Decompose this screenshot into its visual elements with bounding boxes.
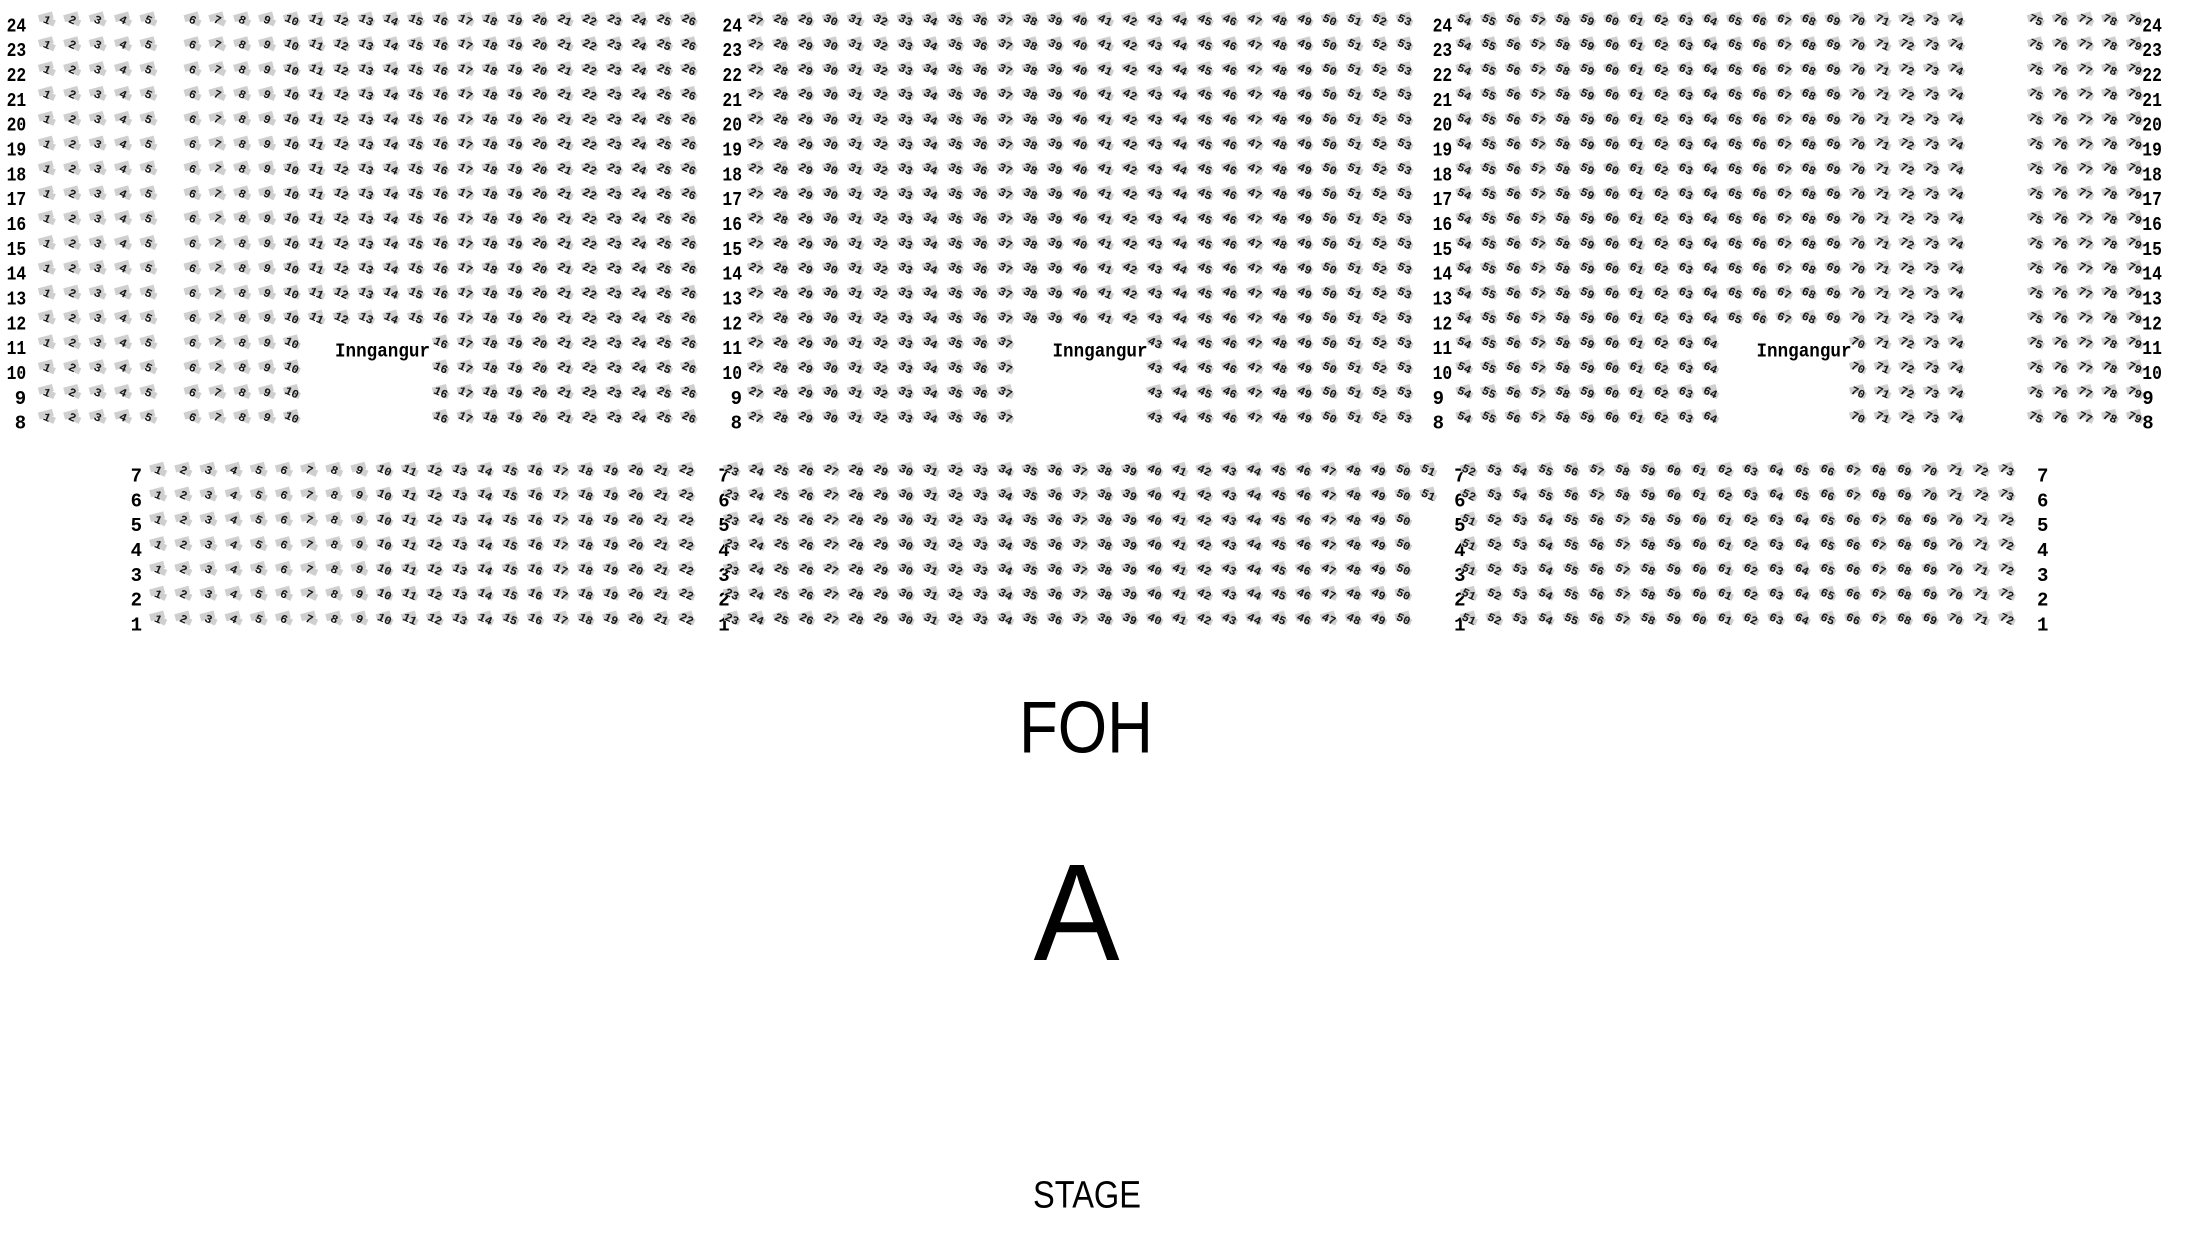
- svg-text:5: 5: [131, 515, 142, 537]
- svg-text:20: 20: [7, 115, 27, 137]
- svg-text:6: 6: [131, 490, 142, 512]
- svg-text:15: 15: [722, 239, 742, 261]
- svg-text:8: 8: [1433, 413, 1444, 435]
- svg-text:5: 5: [2037, 515, 2048, 537]
- svg-text:STAGE: STAGE: [1033, 1173, 1141, 1216]
- svg-text:21: 21: [7, 90, 27, 112]
- svg-text:9: 9: [1433, 388, 1444, 410]
- svg-text:19: 19: [1433, 140, 1453, 162]
- svg-text:18: 18: [2142, 164, 2162, 186]
- svg-text:24: 24: [2142, 15, 2162, 37]
- svg-text:FOH: FOH: [1019, 688, 1153, 769]
- svg-text:1: 1: [131, 614, 142, 636]
- svg-text:21: 21: [1433, 90, 1453, 112]
- svg-text:23: 23: [1433, 40, 1453, 62]
- svg-text:19: 19: [722, 140, 742, 162]
- svg-text:15: 15: [2142, 239, 2162, 261]
- svg-text:22: 22: [1433, 65, 1453, 87]
- svg-text:8: 8: [2142, 413, 2153, 435]
- svg-text:20: 20: [722, 115, 742, 137]
- svg-text:17: 17: [2142, 189, 2162, 211]
- svg-text:18: 18: [722, 164, 742, 186]
- svg-text:22: 22: [722, 65, 742, 87]
- svg-text:3: 3: [131, 565, 142, 587]
- svg-text:22: 22: [2142, 65, 2162, 87]
- svg-text:8: 8: [731, 413, 742, 435]
- svg-text:17: 17: [1433, 189, 1453, 211]
- svg-text:9: 9: [2142, 388, 2153, 410]
- svg-text:15: 15: [7, 239, 27, 261]
- svg-text:10: 10: [7, 363, 27, 385]
- svg-text:14: 14: [722, 264, 742, 286]
- svg-text:20: 20: [2142, 115, 2162, 137]
- svg-text:11: 11: [722, 338, 742, 360]
- svg-text:19: 19: [7, 140, 27, 162]
- svg-text:24: 24: [7, 15, 27, 37]
- svg-text:11: 11: [7, 338, 27, 360]
- svg-text:21: 21: [2142, 90, 2162, 112]
- svg-text:9: 9: [731, 388, 742, 410]
- svg-text:12: 12: [2142, 313, 2162, 335]
- svg-text:3: 3: [2037, 565, 2048, 587]
- svg-text:10: 10: [1433, 363, 1453, 385]
- svg-text:Inngangur: Inngangur: [1757, 341, 1852, 363]
- svg-text:Inngangur: Inngangur: [1053, 341, 1148, 363]
- svg-text:4: 4: [131, 540, 142, 562]
- svg-text:21: 21: [722, 90, 742, 112]
- svg-text:A: A: [1034, 836, 1120, 990]
- svg-text:8: 8: [15, 413, 26, 435]
- svg-text:10: 10: [722, 363, 742, 385]
- svg-text:6: 6: [2037, 490, 2048, 512]
- svg-text:16: 16: [2142, 214, 2162, 236]
- svg-text:11: 11: [1433, 338, 1453, 360]
- svg-text:24: 24: [722, 15, 742, 37]
- svg-text:10: 10: [2142, 363, 2162, 385]
- svg-text:14: 14: [7, 264, 27, 286]
- svg-text:17: 17: [7, 189, 27, 211]
- svg-text:13: 13: [722, 289, 742, 311]
- svg-text:12: 12: [7, 313, 27, 335]
- svg-text:11: 11: [2142, 338, 2162, 360]
- svg-text:13: 13: [7, 289, 27, 311]
- svg-text:4: 4: [2037, 540, 2048, 562]
- svg-text:17: 17: [722, 189, 742, 211]
- svg-text:13: 13: [2142, 289, 2162, 311]
- svg-text:24: 24: [1433, 15, 1453, 37]
- svg-text:16: 16: [722, 214, 742, 236]
- svg-text:7: 7: [2037, 466, 2048, 488]
- svg-text:18: 18: [1433, 164, 1453, 186]
- svg-text:19: 19: [2142, 140, 2162, 162]
- svg-text:12: 12: [722, 313, 742, 335]
- svg-text:22: 22: [7, 65, 27, 87]
- svg-text:14: 14: [1433, 264, 1453, 286]
- svg-text:Inngangur: Inngangur: [335, 341, 430, 363]
- svg-text:23: 23: [7, 40, 27, 62]
- svg-text:20: 20: [1433, 115, 1453, 137]
- svg-text:7: 7: [131, 466, 142, 488]
- svg-text:12: 12: [1433, 313, 1453, 335]
- svg-text:23: 23: [2142, 40, 2162, 62]
- svg-text:2: 2: [2037, 590, 2048, 612]
- svg-text:15: 15: [1433, 239, 1453, 261]
- svg-text:14: 14: [2142, 264, 2162, 286]
- svg-text:2: 2: [131, 590, 142, 612]
- svg-text:16: 16: [1433, 214, 1453, 236]
- svg-text:9: 9: [15, 388, 26, 410]
- svg-text:16: 16: [7, 214, 27, 236]
- svg-text:1: 1: [2037, 614, 2048, 636]
- svg-text:23: 23: [722, 40, 742, 62]
- svg-text:13: 13: [1433, 289, 1453, 311]
- svg-text:18: 18: [7, 164, 27, 186]
